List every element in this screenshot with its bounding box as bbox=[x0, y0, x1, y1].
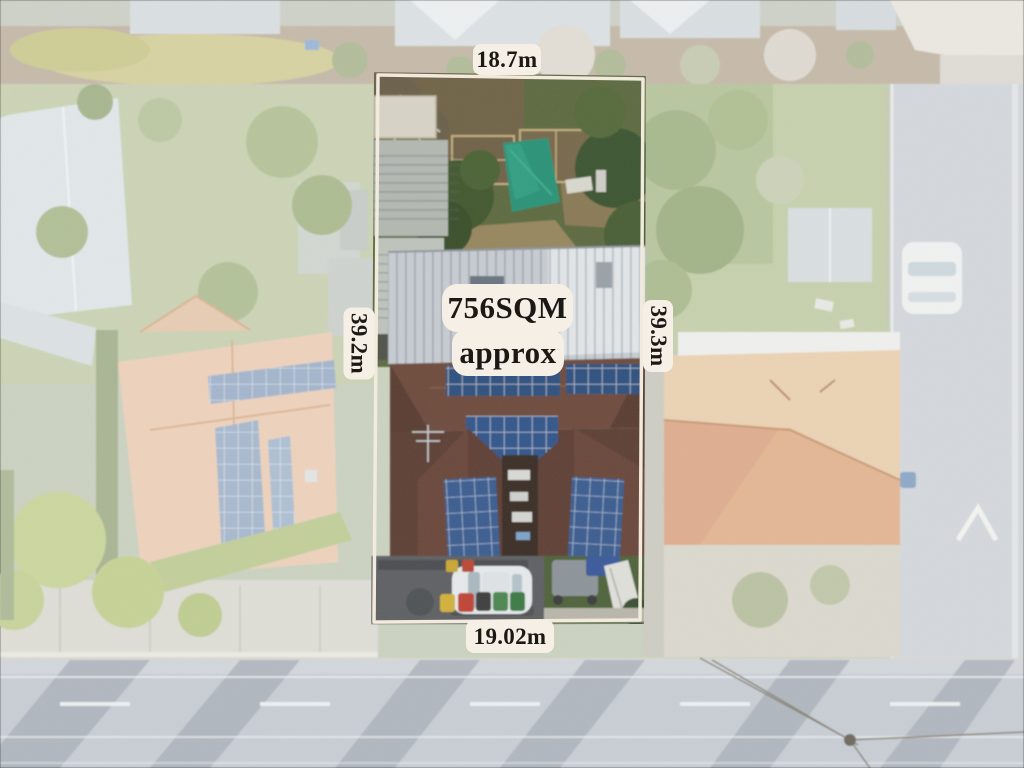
area-label-approx: approx bbox=[452, 329, 564, 376]
right-depth-label: 39.3m bbox=[643, 300, 673, 372]
aerial-property-photo: 18.7m 39.2m 39.3m 19.02m 756SQM approx bbox=[0, 0, 1024, 768]
area-label-value: 756SQM bbox=[442, 284, 573, 332]
left-depth-label: 39.2m bbox=[344, 308, 375, 380]
top-width-label: 18.7m bbox=[473, 44, 541, 75]
bottom-width-label: 19.02m bbox=[466, 620, 554, 653]
